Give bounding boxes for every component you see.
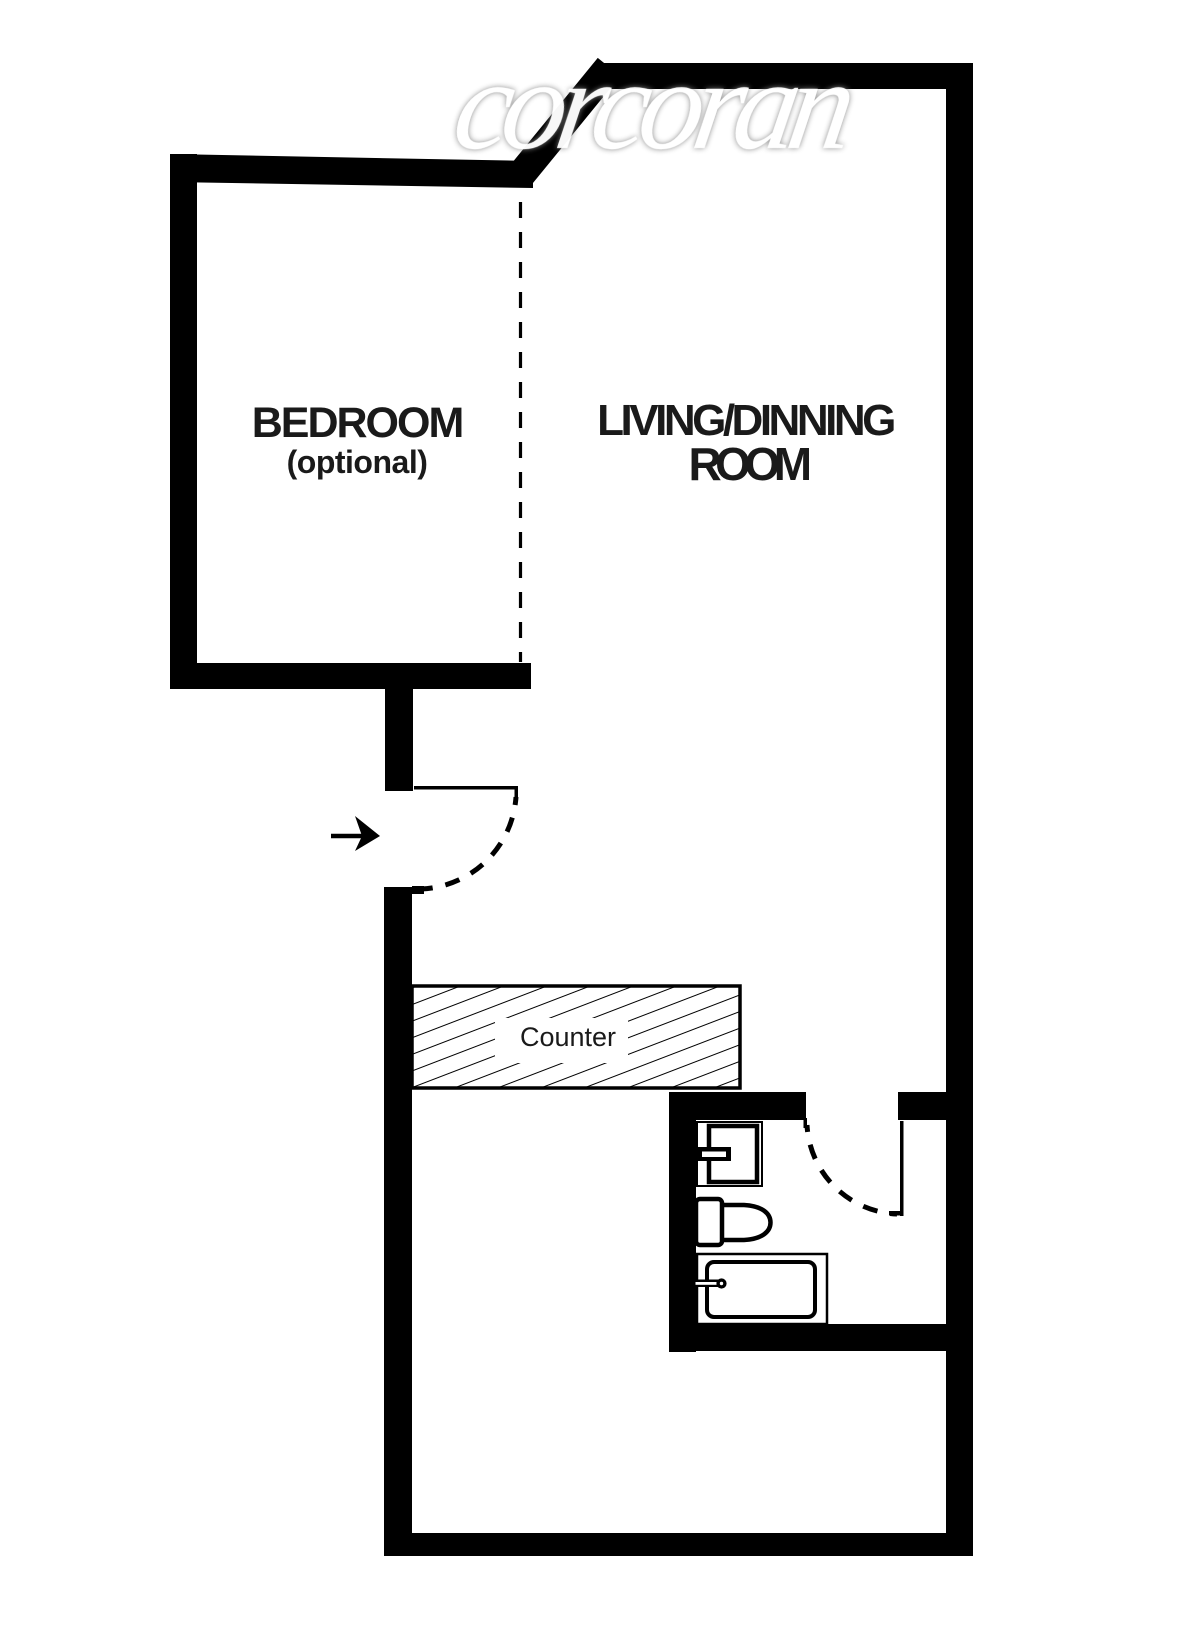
- svg-text:(optional): (optional): [287, 444, 428, 480]
- svg-text:corcoran: corcoran: [445, 34, 861, 177]
- svg-text:Counter: Counter: [520, 1022, 616, 1052]
- svg-text:BEDROOM: BEDROOM: [252, 399, 463, 447]
- svg-text:ROOM: ROOM: [688, 438, 809, 490]
